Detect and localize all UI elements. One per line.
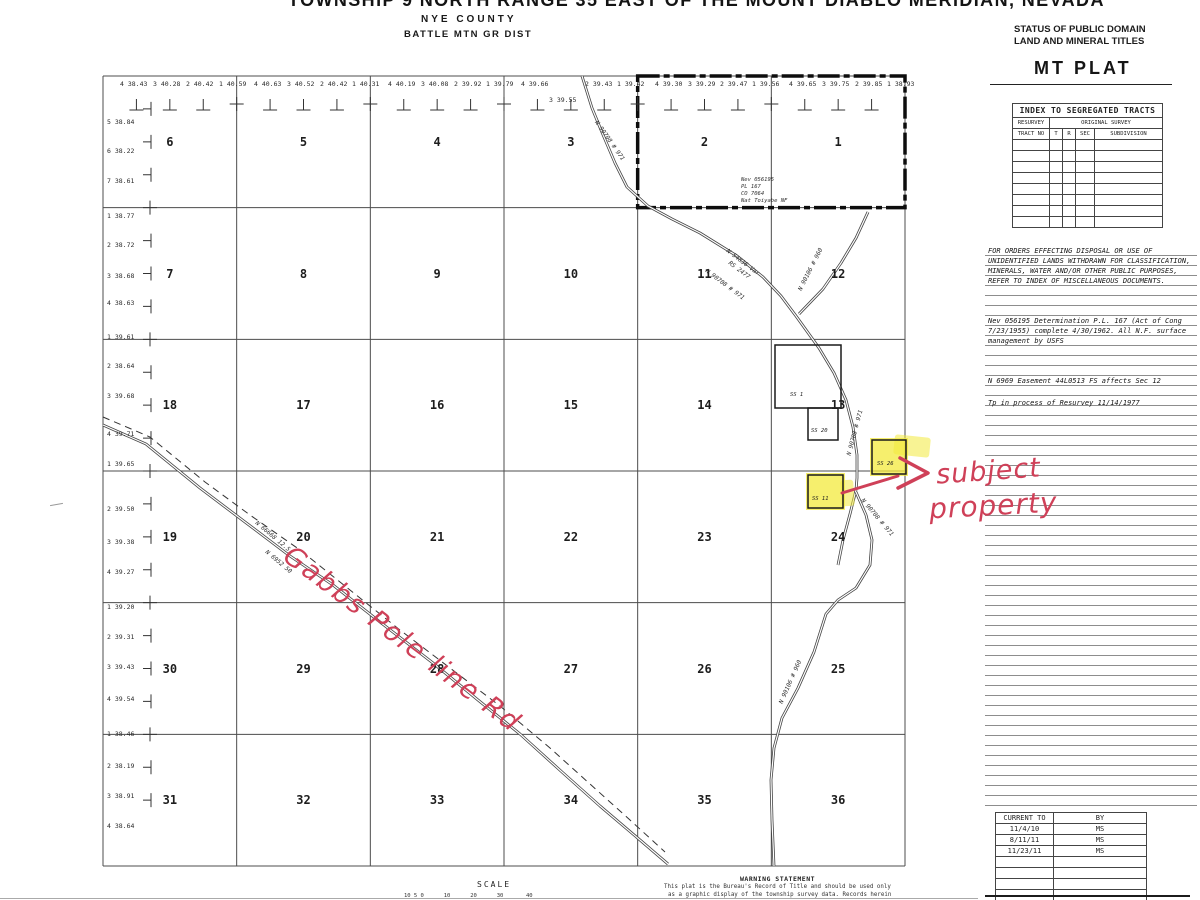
quarter-tick xyxy=(129,99,143,110)
corner-tick xyxy=(143,464,157,478)
quarter-tick xyxy=(464,99,478,110)
quarter-tick xyxy=(143,267,151,281)
quarter-tick xyxy=(731,99,745,110)
quarter-tick xyxy=(196,99,210,110)
corner-tick xyxy=(363,97,377,111)
corner-tick xyxy=(143,332,157,346)
quarter-tick xyxy=(865,99,879,110)
route-960-north xyxy=(799,212,868,314)
warning-statement-line1: This plat is the Bureau's Record of Titl… xyxy=(664,884,891,890)
quarter-tick xyxy=(530,99,544,110)
quarter-tick xyxy=(143,497,151,511)
quarter-tick xyxy=(143,694,151,708)
quarter-tick xyxy=(597,99,611,110)
survey-square xyxy=(808,408,838,440)
quarter-tick xyxy=(143,793,151,807)
township-map-canvas xyxy=(0,0,1200,900)
quarter-tick xyxy=(143,299,151,313)
page-bottom-edge-dark xyxy=(985,895,1190,897)
quarter-tick xyxy=(564,99,578,110)
highlighted-parcel xyxy=(870,438,908,476)
survey-square xyxy=(775,345,841,408)
quarter-tick xyxy=(143,662,151,676)
quarter-tick xyxy=(397,99,411,110)
quarter-tick xyxy=(143,760,151,774)
quarter-tick xyxy=(831,99,845,110)
route-960-south-centerline xyxy=(771,492,872,866)
quarter-tick xyxy=(143,102,151,116)
quarter-tick xyxy=(143,530,151,544)
quarter-tick xyxy=(297,99,311,110)
route-971-north-centerline xyxy=(582,76,857,490)
route-960-south xyxy=(771,492,872,866)
scale-label: SCALE xyxy=(477,880,511,889)
quarter-tick xyxy=(143,234,151,248)
quarter-tick xyxy=(430,99,444,110)
corner-tick xyxy=(497,97,511,111)
warning-statement-title: WARNING STATEMENT xyxy=(740,875,815,883)
quarter-tick xyxy=(143,398,151,412)
corner-tick xyxy=(230,97,244,111)
corner-tick xyxy=(143,596,157,610)
quarter-tick xyxy=(143,135,151,149)
quarter-tick xyxy=(163,99,177,110)
corner-tick xyxy=(143,201,157,215)
page-bottom-edge xyxy=(0,898,978,899)
quarter-tick xyxy=(143,563,151,577)
quarter-tick xyxy=(698,99,712,110)
quarter-tick xyxy=(143,365,151,379)
highlighted-parcel xyxy=(806,473,845,510)
route-960-north-centerline xyxy=(799,212,868,314)
quarter-tick xyxy=(330,99,344,110)
quarter-tick xyxy=(143,168,151,182)
quarter-tick xyxy=(263,99,277,110)
quarter-tick xyxy=(664,99,678,110)
corner-tick xyxy=(764,97,778,111)
quarter-tick xyxy=(798,99,812,110)
corner-tick xyxy=(143,727,157,741)
quarter-tick xyxy=(143,629,151,643)
corner-tick xyxy=(631,97,645,111)
plat-sheet: TOWNSHIP 9 NORTH RANGE 35 EAST OF THE MO… xyxy=(0,0,1200,900)
route-971-north xyxy=(582,76,857,490)
annotation-property: property xyxy=(928,486,1058,526)
